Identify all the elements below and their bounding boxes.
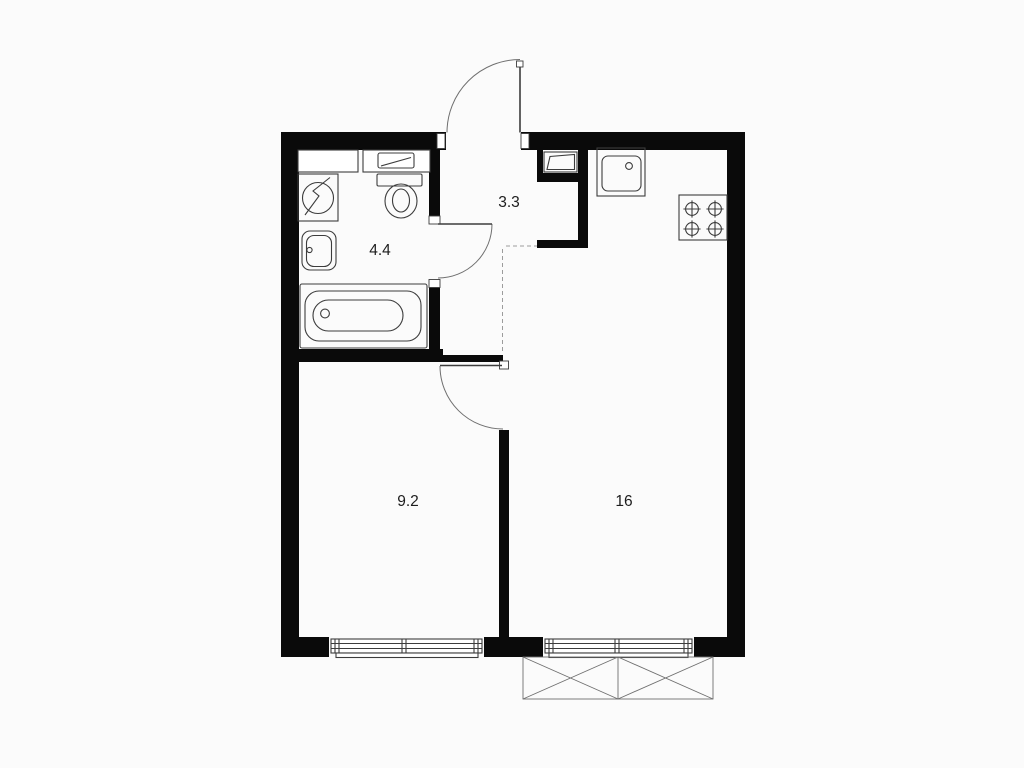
hallway-bedroom-wall bbox=[290, 349, 443, 362]
bathtub-drain bbox=[321, 309, 330, 318]
bathroom-door-arc bbox=[438, 224, 492, 278]
door-jambs bbox=[429, 134, 529, 370]
bedroom-doorway-lintel bbox=[443, 355, 503, 362]
floor-plan-canvas: 4.4 3.3 9.2 16 bbox=[0, 0, 1024, 768]
bathroom-jamb-top bbox=[429, 216, 440, 224]
bathroom-jamb-bottom bbox=[429, 280, 440, 288]
balcony bbox=[523, 657, 713, 699]
stove-icon bbox=[679, 195, 727, 240]
room-label-bedroom: 9.2 bbox=[397, 493, 419, 510]
bathroom-counter-left bbox=[298, 150, 358, 172]
wall-right bbox=[727, 132, 745, 657]
burner bbox=[706, 200, 723, 217]
toilet-bowl-inner bbox=[393, 189, 410, 212]
bathroom-door bbox=[438, 224, 492, 278]
burner bbox=[683, 220, 700, 237]
room-label-hallway: 3.3 bbox=[498, 194, 520, 211]
room-label-living-kitchen: 16 bbox=[615, 493, 632, 510]
entrance-door-arc bbox=[447, 60, 520, 133]
washbasin-inner bbox=[307, 236, 332, 267]
wall-bottom-middle bbox=[484, 637, 543, 657]
bathroom-wall-lower bbox=[429, 284, 440, 350]
wall-bottom-left bbox=[281, 637, 329, 657]
bathroom-wall-upper bbox=[429, 150, 440, 223]
burner bbox=[683, 200, 700, 217]
hallway-kitchen-wall-horizontal bbox=[537, 240, 588, 248]
bathtub-outer bbox=[300, 284, 427, 348]
room-label-bathroom: 4.4 bbox=[369, 242, 391, 259]
hallway-kitchen-wall-vertical bbox=[578, 148, 588, 248]
washbasin-faucet bbox=[307, 247, 312, 252]
bedroom-door bbox=[440, 366, 503, 430]
kitchen-fixtures bbox=[597, 148, 727, 240]
sink-faucet bbox=[626, 163, 633, 170]
burner bbox=[706, 220, 723, 237]
washing-machine-flash bbox=[305, 178, 330, 216]
toilet-icon bbox=[377, 174, 422, 218]
entrance-door-leaf-cap bbox=[517, 61, 524, 67]
washbasin-icon bbox=[302, 231, 336, 270]
bathtub-icon bbox=[300, 284, 427, 348]
room-divider-wall bbox=[499, 430, 509, 637]
utility-panel-door bbox=[547, 155, 575, 170]
wall-top-right bbox=[521, 132, 745, 150]
wall-left bbox=[281, 132, 299, 657]
window-bedroom bbox=[331, 639, 482, 658]
washing-machine-icon bbox=[298, 174, 338, 221]
bathroom-fixtures bbox=[298, 150, 430, 348]
sink-basin bbox=[602, 156, 641, 191]
window-sill bbox=[336, 653, 478, 658]
entrance-jamb-left bbox=[437, 134, 445, 149]
window-living bbox=[545, 639, 692, 658]
bathtub-rim bbox=[305, 291, 421, 341]
entrance-jamb-right bbox=[521, 134, 529, 149]
floor-plan: 4.4 3.3 9.2 16 bbox=[0, 0, 1024, 768]
bathtub-basin bbox=[313, 300, 403, 331]
sink-module bbox=[597, 148, 645, 196]
kitchen-sink-icon bbox=[597, 148, 645, 196]
bedroom-door-arc bbox=[440, 366, 503, 429]
wall-bottom-right bbox=[694, 637, 745, 657]
entrance-door bbox=[447, 60, 523, 133]
utility-panel-icon bbox=[544, 152, 577, 172]
zone-boundary-dashed bbox=[503, 246, 538, 354]
wall-top-left bbox=[281, 132, 446, 150]
